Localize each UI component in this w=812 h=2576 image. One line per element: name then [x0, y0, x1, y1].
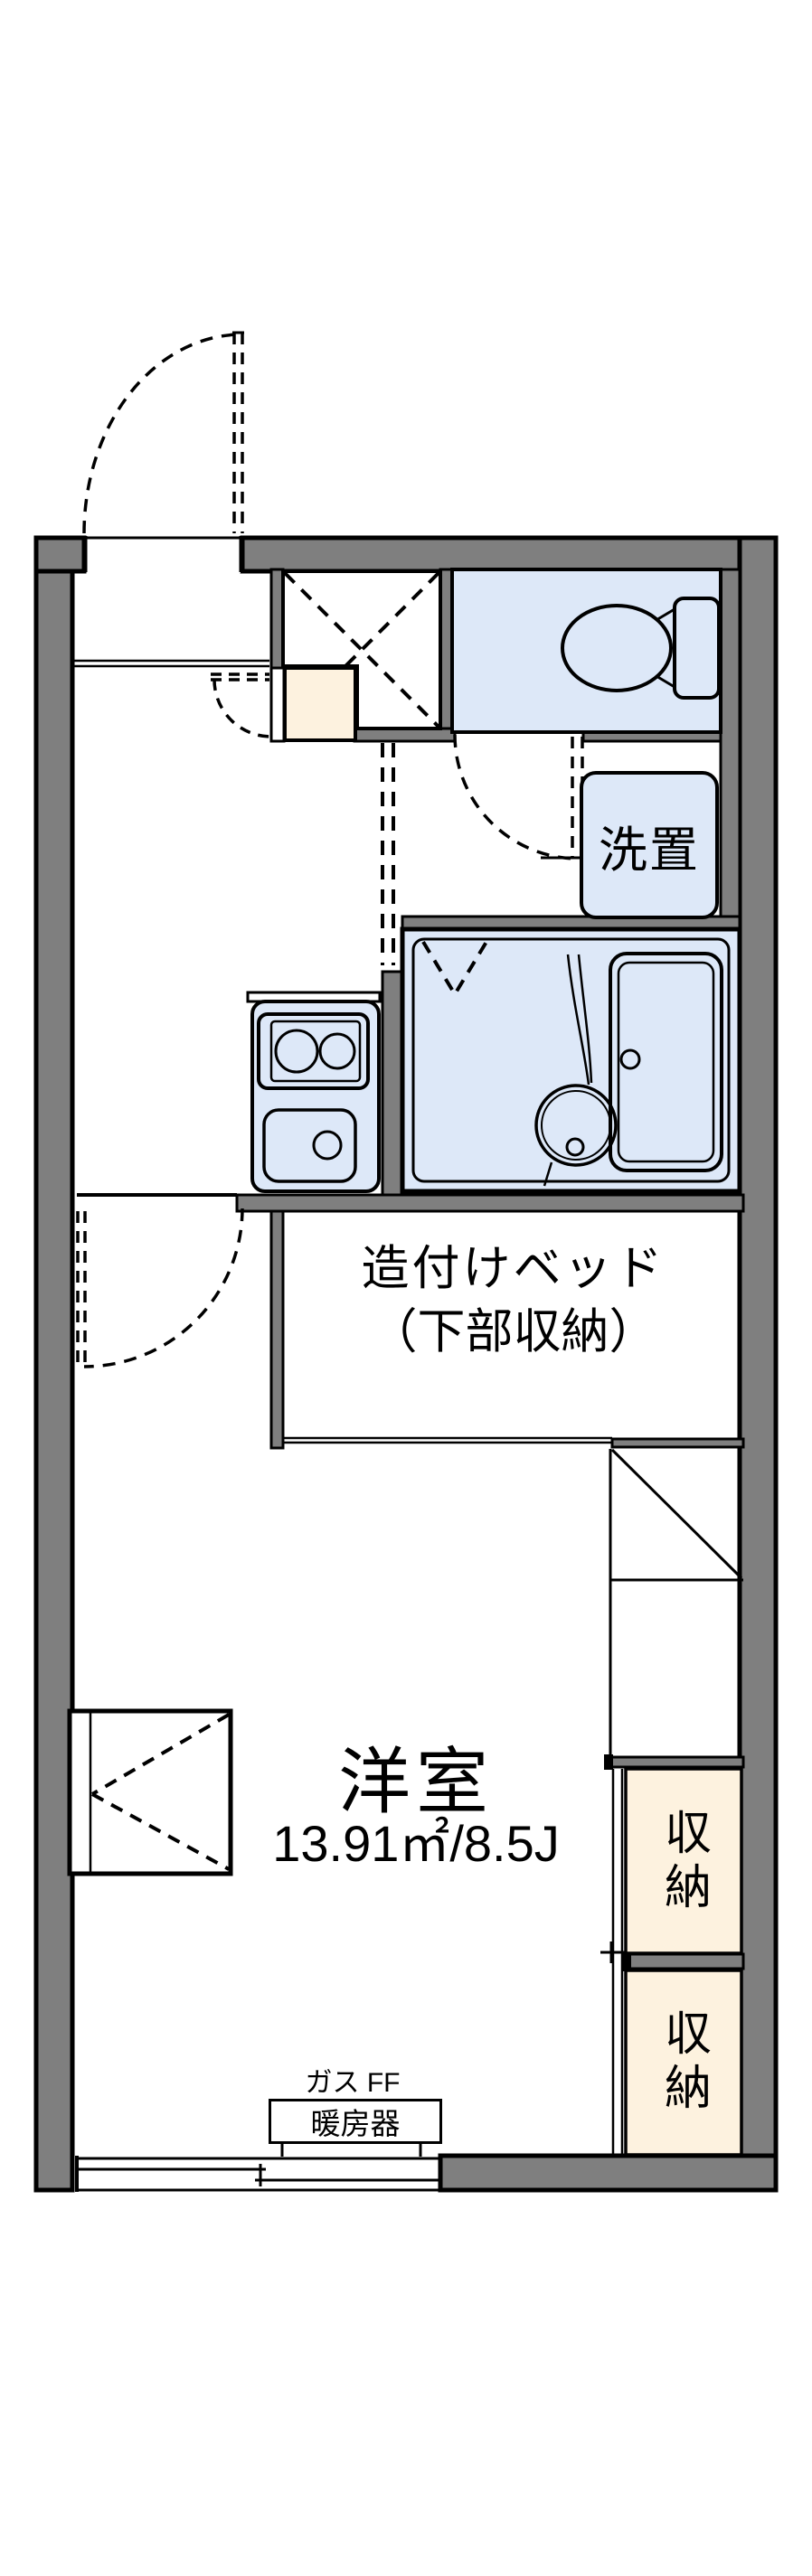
- wall-bottom: [440, 2156, 776, 2190]
- bed-left-wall: [271, 1211, 283, 1448]
- closet-diagonal-cell: [610, 1449, 743, 1757]
- genkan-door-leaf: [271, 668, 284, 741]
- bathroom: [402, 929, 740, 1191]
- kitchen-bath-divider-wall: [382, 972, 402, 1198]
- entrance-door: [84, 333, 244, 533]
- room-door-arc: [84, 1208, 242, 1367]
- entrance-door-arc: [84, 334, 240, 533]
- xcloset-bottom-wall: [354, 729, 455, 741]
- genkan-step: [285, 668, 355, 740]
- closet-diagonal-line: [612, 1450, 741, 1578]
- storage-divider-wall: [629, 1954, 743, 1969]
- toilet-door-arc: [455, 735, 579, 859]
- bay-window-box: [70, 1711, 231, 1874]
- hall-passage-dashed: [382, 743, 393, 965]
- bed-area-bottom-line: [283, 1438, 612, 1443]
- bed-bottom-wall: [612, 1439, 743, 1447]
- wall-top: [242, 538, 776, 571]
- toilet-room: [452, 569, 721, 732]
- storage-sliding-doors: [600, 1769, 626, 2154]
- entrance-opening: [84, 536, 242, 573]
- toilet-icon: [562, 598, 719, 698]
- toilet-door: [455, 735, 584, 859]
- right-inner-wall: [721, 569, 740, 924]
- genkan-door-swing: [211, 674, 271, 737]
- entrance-step-line: [72, 661, 269, 666]
- wall-left: [36, 538, 72, 2190]
- wall-top-left-stub: [36, 538, 84, 571]
- room-door: [78, 1208, 242, 1367]
- bottom-window: [77, 2156, 440, 2192]
- floorplan-drawing: [0, 0, 812, 2576]
- heater-box: 暖房器: [269, 2099, 442, 2144]
- wall-right: [740, 538, 776, 2190]
- bed-top-wall: [237, 1195, 743, 1211]
- floorplan-page: 洗置 造付けベッド （下部収納） 洋室 13.91㎡/8.5J ガス FF 暖房…: [0, 0, 812, 2576]
- kitchen-unit: [248, 992, 380, 1191]
- storage-lower-cell: [626, 1970, 741, 2155]
- genkan-door-arc: [214, 680, 271, 737]
- storage-upper-cell: [626, 1769, 741, 1953]
- storage-top-stub-wall: [610, 1757, 743, 1767]
- laundry-pan: [581, 773, 717, 917]
